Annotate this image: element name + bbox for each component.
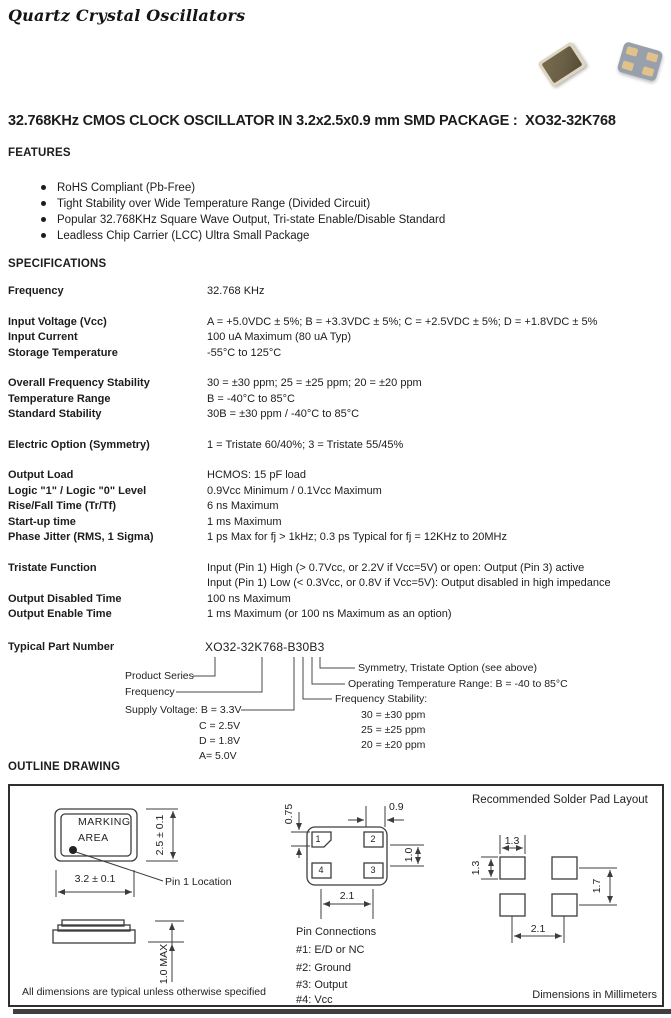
table-row: Logic "1" / Logic "0" Level0.9Vcc Minimu… [8, 484, 668, 500]
table-row: Start-up time1 ms Maximum [8, 515, 668, 531]
pad-number: 2 [366, 834, 380, 844]
spec-value: 6 ns Maximum [207, 499, 668, 515]
part-number-label: Typical Part Number [8, 641, 114, 653]
spec-label: Storage Temperature [8, 346, 207, 362]
legend-frequency: Frequency [125, 686, 175, 698]
spec-label: Start-up time [8, 515, 207, 531]
spec-value: 0.9Vcc Minimum / 0.1Vcc Maximum [207, 484, 668, 500]
dim-thickness: 1.0 MAX [158, 944, 170, 984]
pin-connection-item: #2: Ground [296, 962, 351, 974]
pin-connections-heading: Pin Connections [296, 926, 376, 938]
supply-option: C = 2.5V [199, 720, 240, 732]
dim-height: 2.5 ± 0.1 [154, 815, 166, 856]
document-title: 32.768KHz CMOS CLOCK OSCILLATOR IN 3.2x2… [8, 113, 616, 129]
part-number-diagram: Typical Part Number XO32-32K768-B30B3 Pr… [0, 635, 671, 770]
spec-label: Frequency [8, 284, 207, 300]
spec-value: 1 ps Max for fj > 1kHz; 0.3 ps Typical f… [207, 530, 668, 546]
feature-text: Leadless Chip Carrier (LCC) Ultra Small … [57, 228, 309, 244]
supply-option: D = 1.8V [199, 735, 240, 747]
chip-pad [646, 52, 659, 63]
outline-drawing: MARKING AREA 2.5 ± 0.1 3.2 ± 0.1 Pin 1 L… [8, 784, 664, 1007]
dim-solder-vertical: 1.7 [591, 879, 603, 894]
note-right: Dimensions in Millimeters [532, 989, 657, 1001]
pin1-dot [69, 846, 77, 854]
spec-value: 1 ms Maximum [207, 515, 668, 531]
pad-number: 1 [311, 834, 325, 844]
spec-value: 1 ms Maximum (or 100 ns Maximum as an op… [207, 607, 668, 623]
table-row: Rise/Fall Time (Tr/Tf)6 ns Maximum [8, 499, 668, 515]
feature-text: Tight Stability over Wide Temperature Ra… [57, 196, 370, 212]
list-item: Leadless Chip Carrier (LCC) Ultra Small … [41, 228, 641, 244]
table-row: Tristate FunctionInput (Pin 1) High (> 0… [8, 561, 668, 592]
spec-value: 100 ns Maximum [207, 592, 668, 608]
spec-label: Output Disabled Time [8, 592, 207, 608]
features-heading: FEATURES [8, 147, 71, 159]
bullet-icon [41, 217, 46, 222]
feature-text: RoHS Compliant (Pb-Free) [57, 180, 195, 196]
spec-label: Output Enable Time [8, 607, 207, 623]
spec-label: Tristate Function [8, 561, 207, 592]
chip-pad [642, 66, 655, 77]
dim-solder-pitch: 2.1 [531, 923, 546, 935]
spec-label: Electric Option (Symmetry) [8, 438, 207, 454]
stability-option: 30 = ±30 ppm [361, 709, 425, 721]
dim-pitch: 2.1 [340, 890, 355, 902]
pin-connection-item: #4: Vcc [296, 994, 333, 1006]
legend-operating-temp: Operating Temperature Range: B = -40 to … [348, 678, 568, 690]
table-row: Standard Stability30B = ±30 ppm / -40°C … [8, 407, 668, 423]
datasheet-page: Quartz Crystal Oscillators 32.768KHz CMO… [0, 0, 671, 1018]
marking-area-text: MARKING [78, 816, 131, 828]
pin-connection-item: #3: Output [296, 979, 347, 991]
marking-area-text: AREA [78, 832, 109, 844]
spec-value: 32.768 KHz [207, 284, 668, 300]
spec-label: Logic "1" / Logic "0" Level [8, 484, 207, 500]
table-row: Output Enable Time1 ms Maximum (or 100 n… [8, 607, 668, 623]
table-row: Output LoadHCMOS: 15 pF load [8, 468, 668, 484]
spec-label: Temperature Range [8, 392, 207, 408]
table-row: Input Current100 uA Maximum (80 uA Typ) [8, 330, 668, 346]
bullet-icon [41, 201, 46, 206]
dim-row-gap: 1.0 [403, 848, 415, 863]
dim-width: 3.2 ± 0.1 [75, 873, 116, 885]
solder-pad-title: Recommended Solder Pad Layout [472, 794, 648, 806]
table-row: Output Disabled Time100 ns Maximum [8, 592, 668, 608]
dim-solder-pad-w: 1.3 [505, 835, 520, 847]
footer-bar [13, 1009, 671, 1014]
pin1-location-label: Pin 1 Location [165, 876, 232, 888]
list-item: Tight Stability over Wide Temperature Ra… [41, 196, 641, 212]
bullet-icon [41, 185, 46, 190]
outline-heading: OUTLINE DRAWING [8, 761, 120, 773]
spec-value: B = -40°C to 85°C [207, 392, 668, 408]
pin-connection-item: #1: E/D or NC [296, 944, 364, 956]
legend-frequency-stability: Frequency Stability: [335, 693, 427, 705]
table-row: Frequency32.768 KHz [8, 284, 668, 300]
stability-option: 20 = ±20 ppm [361, 739, 425, 751]
dim-pad-width: 0.9 [389, 801, 404, 813]
spec-label: Phase Jitter (RMS, 1 Sigma) [8, 530, 207, 546]
package-photo-top-view [538, 42, 590, 88]
chip-body [537, 41, 586, 87]
table-row: Electric Option (Symmetry)1 = Tristate 6… [8, 438, 668, 454]
spec-label: Rise/Fall Time (Tr/Tf) [8, 499, 207, 515]
table-row: Phase Jitter (RMS, 1 Sigma)1 ps Max for … [8, 530, 668, 546]
feature-text: Popular 32.768KHz Square Wave Output, Tr… [57, 212, 445, 228]
spec-value: 1 = Tristate 60/40%; 3 = Tristate 55/45% [207, 438, 668, 454]
bullet-icon [41, 233, 46, 238]
features-list: RoHS Compliant (Pb-Free) Tight Stability… [41, 180, 641, 244]
list-item: Popular 32.768KHz Square Wave Output, Tr… [41, 212, 641, 228]
supply-option: A= 5.0V [199, 750, 237, 762]
legend-supply-voltage: Supply Voltage: B = 3.3V [125, 704, 241, 716]
spec-label: Overall Frequency Stability [8, 376, 207, 392]
chip-pad [621, 60, 634, 71]
list-item: RoHS Compliant (Pb-Free) [41, 180, 641, 196]
package-shapes [53, 809, 577, 943]
table-row: Temperature RangeB = -40°C to 85°C [8, 392, 668, 408]
spec-value: 100 uA Maximum (80 uA Typ) [207, 330, 668, 346]
table-row: Input Voltage (Vcc)A = +5.0VDC ± 5%; B =… [8, 315, 668, 331]
pad-number: 4 [314, 865, 328, 875]
chip-lid [541, 46, 582, 84]
legend-product-series: Product Series [125, 670, 194, 682]
chip-pad [626, 46, 639, 57]
legend-symmetry: Symmetry, Tristate Option (see above) [358, 662, 537, 674]
dim-pad-height: 0.75 [283, 804, 295, 824]
spec-label: Input Voltage (Vcc) [8, 315, 207, 331]
specifications-table: Frequency32.768 KHz Input Voltage (Vcc)A… [8, 284, 668, 623]
spec-value: 30 = ±30 ppm; 25 = ±25 ppm; 20 = ±20 ppm [207, 376, 668, 392]
spec-label: Standard Stability [8, 407, 207, 423]
part-number-value: XO32-32K768-B30B3 [205, 640, 324, 654]
spec-value: 30B = ±30 ppm / -40°C to 85°C [207, 407, 668, 423]
spec-value: Input (Pin 1) High (> 0.7Vcc, or 2.2V if… [207, 561, 668, 592]
specifications-heading: SPECIFICATIONS [8, 258, 106, 270]
spec-value: A = +5.0VDC ± 5%; B = +3.3VDC ± 5%; C = … [207, 315, 668, 331]
spec-label: Input Current [8, 330, 207, 346]
table-row: Overall Frequency Stability30 = ±30 ppm;… [8, 376, 668, 392]
spec-value: -55°C to 125°C [207, 346, 668, 362]
chip-body [617, 41, 664, 82]
dim-solder-pad-h: 1.3 [470, 861, 482, 876]
stability-option: 25 = ±25 ppm [361, 724, 425, 736]
note-left: All dimensions are typical unless otherw… [22, 986, 266, 998]
page-title: Quartz Crystal Oscillators [8, 6, 245, 25]
package-photo-bottom-view [614, 40, 668, 86]
spec-label: Output Load [8, 468, 207, 484]
pad-number: 3 [366, 865, 380, 875]
table-row: Storage Temperature-55°C to 125°C [8, 346, 668, 362]
spec-value: HCMOS: 15 pF load [207, 468, 668, 484]
